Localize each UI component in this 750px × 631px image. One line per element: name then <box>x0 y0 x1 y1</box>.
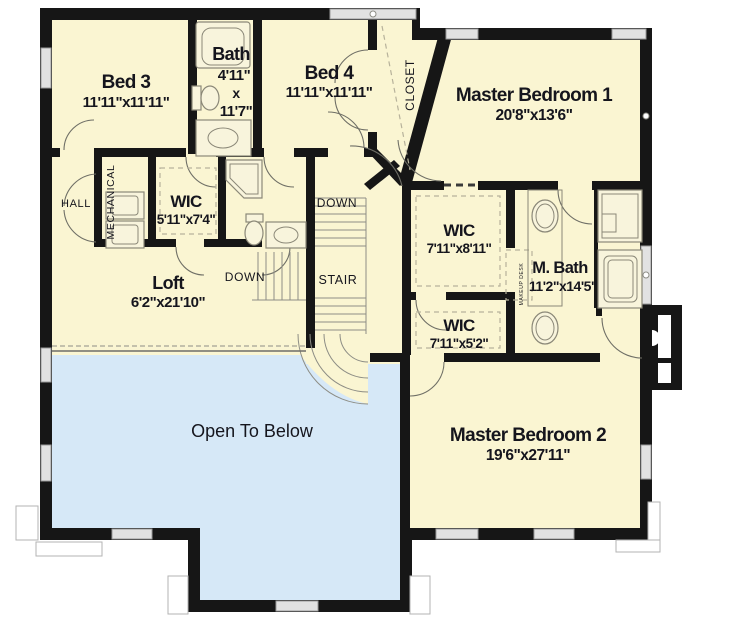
vanity <box>196 120 251 156</box>
window-marker <box>370 11 376 17</box>
toilet-tank <box>192 86 201 110</box>
window <box>534 529 574 539</box>
corner-trim <box>16 506 38 540</box>
room-dims-loft: 6'2"x21'10" <box>131 294 206 311</box>
fireplace-insert-upper <box>658 315 671 358</box>
window <box>41 348 51 382</box>
toilet <box>245 221 263 245</box>
wall <box>506 188 515 248</box>
wall <box>218 157 226 247</box>
label-makeup-desk: MAKEUP DESK <box>519 263 525 306</box>
room-label-wic-hall: WIC <box>170 192 202 211</box>
wall <box>368 20 377 50</box>
room-dims-bath-x: x <box>232 85 240 101</box>
window <box>276 601 318 611</box>
room-label-master2: Master Bedroom 2 <box>450 425 606 446</box>
wall <box>306 148 315 348</box>
toilet <box>201 86 219 110</box>
window <box>641 445 651 479</box>
label-hall: HALL <box>61 198 91 210</box>
corner-trim <box>648 502 660 540</box>
label-mechanical: MECHANICAL <box>105 165 117 240</box>
wall <box>148 157 156 247</box>
wall <box>478 181 558 190</box>
room-label-master1: Master Bedroom 1 <box>456 85 613 106</box>
room-dims-wic-hall: 5'11"x7'4" <box>157 212 216 227</box>
room-dims-bath-w: 4'11" <box>218 67 251 84</box>
window <box>41 48 51 88</box>
label-down-top: DOWN <box>317 196 357 210</box>
vanity <box>266 222 306 248</box>
window <box>41 445 51 481</box>
wall <box>253 20 262 154</box>
wall <box>402 188 411 355</box>
corner-trim <box>616 540 660 552</box>
floor-plan-canvas: Bed 3 11'11"x11'11" Bath 4'11" x 11'7" B… <box>0 0 750 631</box>
label-stair: STAIR <box>319 273 358 287</box>
label-closet: CLOSET <box>403 59 417 111</box>
room-dims-master2: 19'6"x27'11" <box>486 447 570 464</box>
wall <box>592 181 652 190</box>
wall <box>444 353 600 362</box>
corner-trim <box>36 542 102 556</box>
room-dims-wic2: 7'11"x5'2" <box>430 336 489 351</box>
room-label-bed3: Bed 3 <box>102 72 151 93</box>
room-label-loft: Loft <box>152 273 184 293</box>
floor-plan: Bed 3 11'11"x11'11" Bath 4'11" x 11'7" B… <box>0 0 750 631</box>
wall <box>506 298 515 362</box>
wall <box>94 148 186 157</box>
room-label-bed4: Bed 4 <box>305 63 355 84</box>
wall <box>446 292 515 300</box>
room-dims-bed3: 11'11"x11'11" <box>83 94 170 111</box>
room-label-bath: Bath <box>212 44 250 64</box>
room-label-wic1: WIC <box>443 221 475 240</box>
wall <box>402 292 416 300</box>
window <box>612 29 646 39</box>
room-label-mbath: M. Bath <box>532 259 588 277</box>
shower <box>598 190 642 242</box>
window <box>446 29 478 39</box>
room-label-wic2: WIC <box>443 316 475 335</box>
window <box>436 529 478 539</box>
room-dims-mbath: 11'2"x14'5" <box>529 278 597 294</box>
room-dims-wic1: 7'11"x8'11" <box>427 241 492 256</box>
wall <box>370 353 410 362</box>
wall <box>94 157 102 247</box>
room-dims-bed4: 11'11"x11'11" <box>286 84 373 101</box>
wall <box>52 148 60 157</box>
wall <box>400 362 410 528</box>
corner-trim <box>410 576 430 614</box>
corner-trim <box>168 576 188 614</box>
fireplace-insert-lower <box>658 363 671 383</box>
window-marker <box>643 113 649 119</box>
window-marker <box>643 272 649 278</box>
room-dims-bath-h: 11'7" <box>220 103 253 120</box>
label-open-to-below: Open To Below <box>191 421 314 441</box>
label-down-left: DOWN <box>225 270 265 284</box>
room-dims-master1: 20'8"x13'6" <box>496 107 573 124</box>
window <box>112 529 152 539</box>
